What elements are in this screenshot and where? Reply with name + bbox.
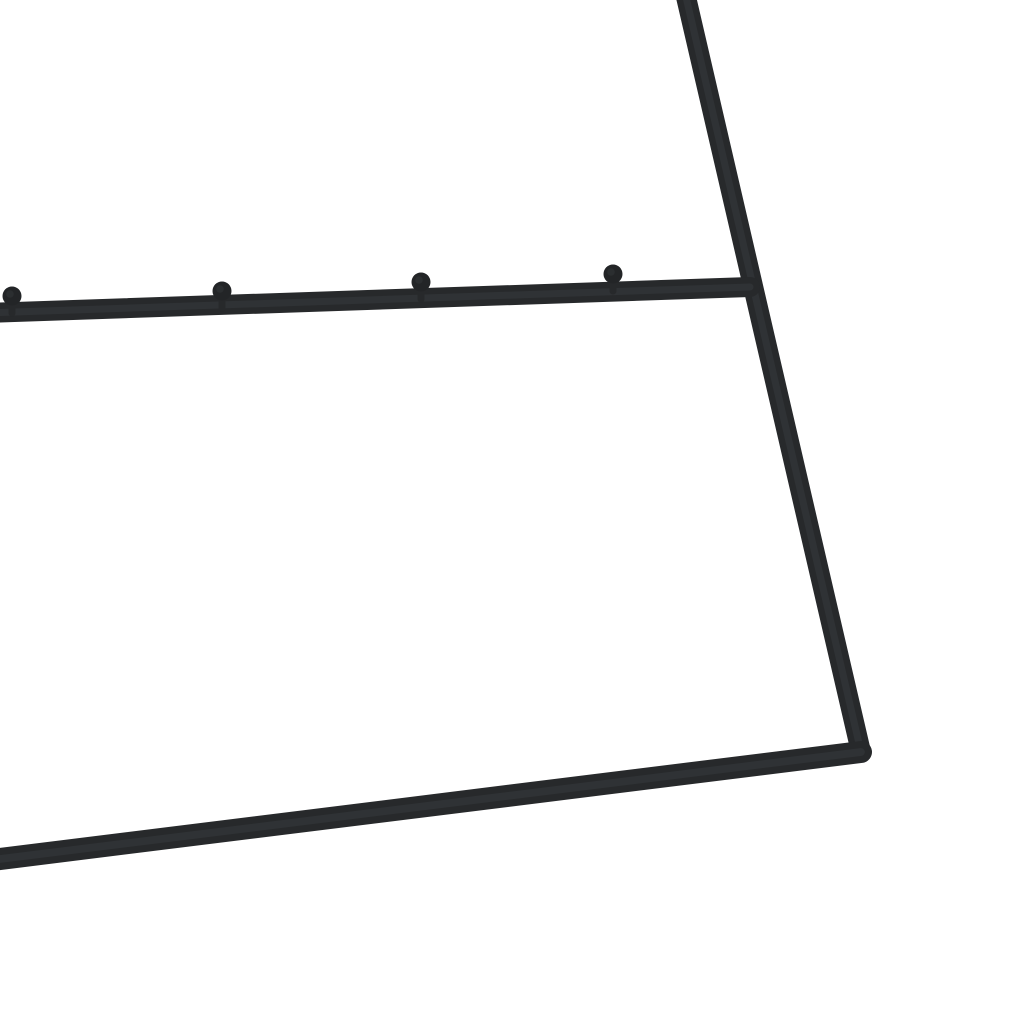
frame-upright-sheen bbox=[683, 0, 861, 752]
hook-peg-ball-highlight-1 bbox=[6, 290, 14, 298]
hook-peg-ball-highlight-3 bbox=[415, 276, 423, 284]
coat-rack-frame-graphic bbox=[0, 0, 1024, 1024]
product-photo bbox=[0, 0, 1024, 1024]
frame-bottom-rail-sheen bbox=[0, 752, 861, 861]
hook-peg-ball-highlight-2 bbox=[216, 285, 224, 293]
hook-peg-ball-highlight-4 bbox=[607, 268, 615, 276]
